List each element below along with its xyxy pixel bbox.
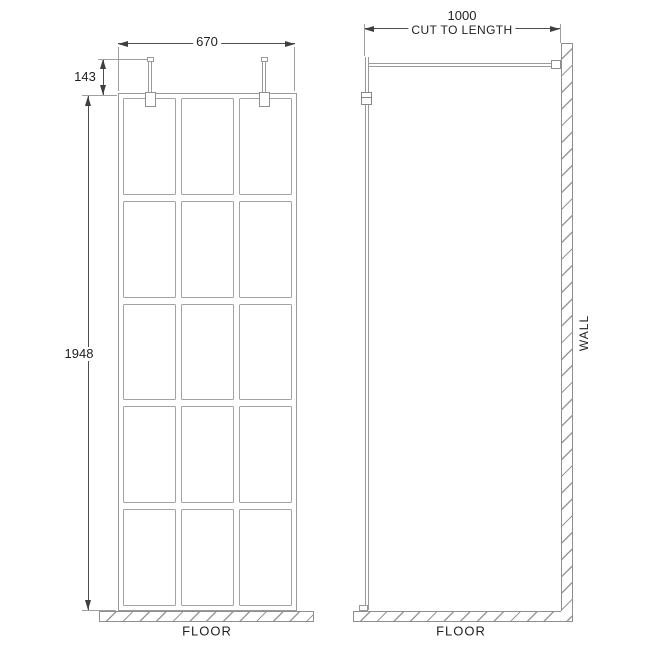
wall-hatch — [561, 43, 573, 622]
support-post — [262, 61, 266, 92]
wall-fitting — [551, 60, 561, 69]
post-bracket — [145, 92, 156, 107]
dim-arrow-up-icon — [85, 96, 91, 106]
dim-arrow-down-icon — [85, 600, 91, 610]
support-bar — [369, 63, 552, 67]
dim-label-bar-length: 1000 — [445, 9, 480, 23]
dim-label-width: 670 — [193, 35, 221, 49]
dim-label-panel-height: 1948 — [62, 347, 97, 361]
glass-pane — [239, 201, 292, 298]
dim-note-cut-to-length: CUT TO LENGTH — [408, 23, 515, 37]
shower-screen-frame — [118, 93, 297, 611]
floor-label: FLOOR — [436, 624, 486, 639]
glass-pane — [181, 201, 234, 298]
extension-line — [294, 47, 295, 91]
support-post — [148, 61, 152, 92]
panel-foot — [359, 605, 368, 611]
glass-pane — [123, 406, 176, 503]
dim-arrow-right-icon — [550, 26, 560, 32]
glass-pane — [239, 406, 292, 503]
dim-label-bracket-height: 143 — [74, 70, 96, 84]
dim-arrow-down-icon — [100, 85, 106, 95]
clamp-joint-line — [362, 97, 371, 98]
glass-pane — [181, 406, 234, 503]
glass-pane — [181, 304, 234, 401]
dim-arrow-left-icon — [118, 41, 128, 47]
glass-pane — [123, 201, 176, 298]
extension-line — [98, 59, 147, 60]
dim-arrow-right-icon — [285, 41, 295, 47]
floor-label: FLOOR — [182, 624, 232, 639]
wall-label: WALL — [577, 315, 591, 351]
support-post-cap — [147, 57, 154, 62]
glass-pane — [123, 98, 176, 195]
dim-arrow-up-icon — [100, 59, 106, 69]
extension-line — [364, 24, 365, 56]
post-bracket — [259, 92, 270, 107]
glass-pane — [181, 98, 234, 195]
glass-clamp — [361, 92, 372, 105]
wall-inner-face-line — [561, 43, 562, 611]
support-post-cap — [261, 57, 268, 62]
glass-pane — [239, 98, 292, 195]
glass-pane — [123, 304, 176, 401]
floor-hatch — [99, 611, 314, 622]
extension-line — [118, 47, 119, 91]
floor-hatch — [353, 611, 561, 622]
glass-pane — [123, 509, 176, 606]
glass-pane — [181, 509, 234, 606]
glass-pane — [239, 509, 292, 606]
glass-panel-edge — [365, 57, 369, 610]
technical-drawing-canvas: 670 143 1948 — [0, 0, 658, 658]
extension-line — [560, 24, 561, 43]
glass-pane — [239, 304, 292, 401]
dim-arrow-left-icon — [364, 26, 374, 32]
